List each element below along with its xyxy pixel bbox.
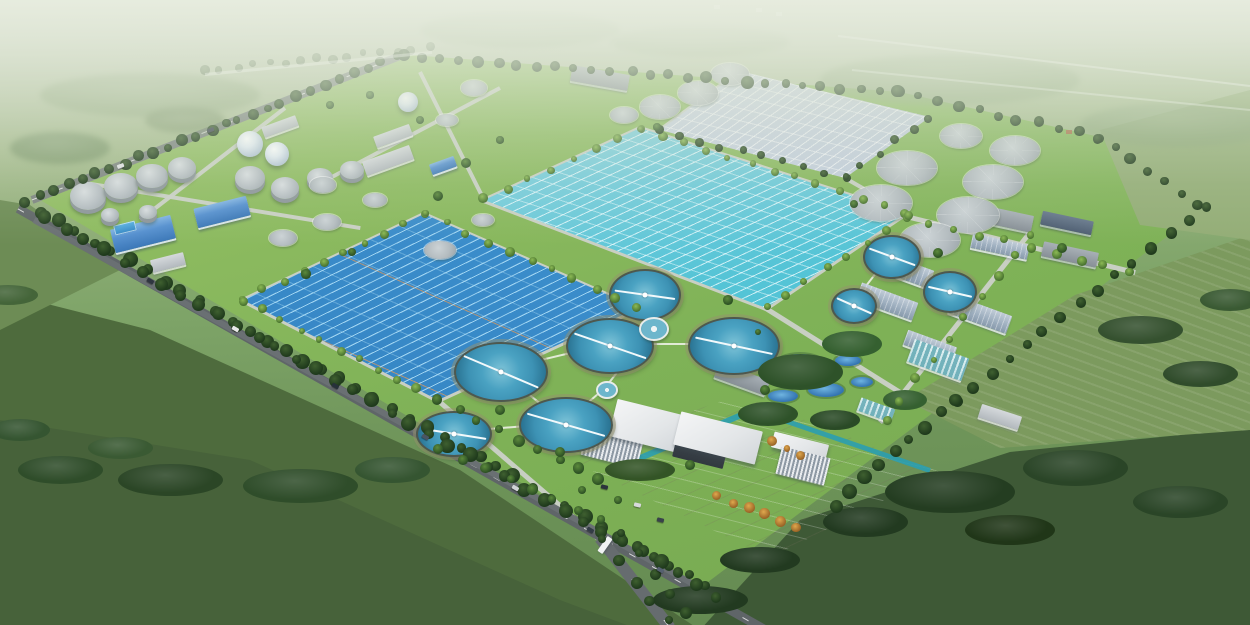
tree	[461, 230, 469, 238]
wastewater-treatment-plant-rendering	[0, 0, 1250, 625]
tree	[435, 54, 444, 63]
tree	[836, 187, 844, 195]
tree	[617, 535, 629, 547]
tree	[644, 596, 654, 606]
tree	[711, 592, 721, 602]
tree-clump	[822, 331, 882, 357]
tree	[950, 226, 957, 233]
thickener-tank	[596, 381, 618, 399]
tree	[192, 298, 205, 311]
tree	[1036, 326, 1047, 337]
tree	[1110, 270, 1119, 279]
tree	[685, 460, 695, 470]
tree	[665, 616, 673, 624]
tree	[233, 116, 241, 124]
tree	[549, 265, 556, 272]
tree	[877, 151, 884, 158]
tree	[1027, 231, 1034, 238]
tree	[478, 193, 488, 203]
tree	[578, 517, 588, 527]
storage-tank	[271, 177, 299, 199]
tree	[1166, 227, 1177, 238]
tree	[312, 53, 321, 62]
storage-tank	[101, 208, 119, 222]
tree	[811, 179, 819, 187]
covered-tank	[610, 107, 638, 123]
tree	[175, 290, 186, 301]
covered-tank	[640, 95, 680, 118]
tree	[48, 185, 59, 196]
tree	[505, 247, 515, 257]
tree	[527, 484, 538, 495]
tree	[890, 445, 902, 457]
tree	[571, 156, 578, 163]
tree-clump	[1023, 450, 1128, 486]
tree	[494, 58, 504, 68]
clarifier-center-hub	[452, 432, 457, 437]
tree	[1076, 297, 1087, 308]
clarifier-tank	[454, 342, 548, 402]
tree	[646, 70, 655, 79]
tree	[673, 567, 683, 577]
tree	[593, 285, 602, 294]
tree	[1077, 256, 1087, 266]
tree	[212, 307, 225, 320]
tree	[1127, 259, 1136, 268]
storage-tank	[139, 205, 157, 219]
tree	[1145, 242, 1157, 254]
tree	[1125, 268, 1133, 276]
tree-clump	[355, 457, 430, 483]
tree	[918, 421, 932, 435]
clarifier-center-hub	[852, 304, 857, 309]
tree	[326, 101, 333, 108]
tree	[461, 158, 471, 168]
covered-tank	[363, 193, 387, 207]
tree	[249, 60, 256, 67]
tree	[631, 577, 643, 589]
covered-tank	[310, 177, 336, 192]
covered-tank	[940, 124, 982, 148]
storage-tank	[70, 182, 106, 210]
clarifier-tank	[863, 235, 921, 279]
tree	[267, 59, 273, 65]
tree	[744, 502, 755, 513]
tree	[567, 273, 576, 282]
tree-clump	[18, 456, 103, 484]
tree	[592, 473, 604, 485]
tree-clump	[720, 547, 800, 573]
tree-clump	[810, 410, 860, 430]
tree	[301, 269, 310, 278]
tree	[598, 535, 606, 543]
tree	[38, 210, 51, 223]
tree-clump	[758, 354, 843, 390]
tree	[775, 516, 786, 527]
tree	[653, 123, 660, 130]
tree	[422, 210, 429, 217]
tree-clump	[1163, 361, 1238, 387]
tree	[495, 425, 503, 433]
tree	[949, 394, 961, 406]
tree	[635, 549, 643, 557]
tree	[700, 71, 712, 83]
tree	[380, 230, 389, 239]
tree	[872, 459, 885, 472]
tree	[472, 416, 480, 424]
tree-clump	[610, 27, 790, 57]
covered-tank	[963, 165, 1023, 200]
tree	[613, 555, 624, 566]
tree	[339, 249, 346, 256]
tree	[1112, 143, 1120, 151]
tree-clump	[40, 73, 260, 117]
tree	[120, 258, 130, 268]
tree	[433, 444, 443, 454]
tree	[306, 86, 316, 96]
tree	[147, 147, 158, 158]
tree	[1098, 260, 1107, 269]
tree	[721, 77, 729, 85]
tree	[36, 190, 46, 200]
tree	[1054, 312, 1066, 324]
tree	[953, 101, 965, 113]
tree	[484, 239, 493, 248]
tree	[925, 220, 932, 227]
tree	[280, 344, 293, 357]
storage-tank	[104, 173, 138, 200]
tree	[375, 367, 382, 374]
tree	[883, 416, 892, 425]
tree	[895, 397, 904, 406]
tree	[904, 211, 913, 220]
distant-farm-building	[1066, 130, 1072, 134]
tree	[654, 554, 669, 569]
tree	[881, 201, 889, 209]
tree	[859, 195, 868, 204]
clarifier-tank	[923, 271, 977, 313]
tree	[782, 79, 791, 88]
tree	[994, 271, 1003, 280]
storage-tank	[340, 161, 364, 180]
tree	[695, 138, 704, 147]
tree	[690, 578, 703, 591]
tree	[723, 295, 732, 304]
tree	[524, 175, 531, 182]
tree	[796, 451, 805, 460]
tree	[729, 499, 738, 508]
tree	[683, 73, 693, 83]
tree	[1027, 243, 1037, 253]
tree-clump	[88, 437, 153, 459]
distant-farm-building	[714, 5, 720, 9]
tree	[458, 455, 468, 465]
clarifier-tank	[831, 288, 877, 324]
tree	[507, 475, 515, 483]
covered-tank	[424, 241, 456, 260]
clarifier-tank	[609, 269, 681, 321]
clarifier-center-hub	[608, 344, 613, 349]
tree	[933, 248, 943, 258]
tree	[97, 241, 111, 255]
tree	[791, 523, 801, 533]
covered-tank	[461, 80, 487, 95]
tree	[987, 368, 999, 380]
storage-tank	[168, 157, 196, 179]
tree	[779, 157, 786, 164]
tree-clump	[965, 515, 1055, 545]
clarifier-center-hub	[499, 370, 504, 375]
tree	[360, 49, 367, 56]
tree	[715, 144, 723, 152]
tree	[254, 332, 265, 343]
tree	[376, 48, 384, 56]
covered-tank	[990, 136, 1040, 165]
tree	[1143, 167, 1152, 176]
tree	[614, 496, 621, 503]
tree	[741, 76, 753, 88]
clarifier-center-hub	[732, 344, 737, 349]
tree-clump	[1133, 486, 1228, 518]
tree-clump	[420, 12, 620, 48]
thickener-tank	[639, 317, 669, 341]
tree	[573, 462, 584, 473]
tree	[914, 92, 922, 100]
tree	[712, 491, 721, 500]
tree	[335, 74, 344, 83]
gas-holder-sphere	[237, 131, 263, 157]
tree	[759, 508, 770, 519]
tree	[830, 500, 843, 513]
tree	[393, 376, 401, 384]
clarifier-center-hub	[564, 423, 569, 428]
tree	[496, 136, 503, 143]
tree-clump	[1098, 316, 1183, 344]
tree	[504, 185, 513, 194]
tree	[191, 132, 201, 142]
tree	[1093, 134, 1103, 144]
tree	[610, 293, 620, 303]
tree	[815, 81, 825, 91]
tree	[1006, 355, 1014, 363]
covered-tank	[678, 81, 718, 104]
tree	[843, 173, 850, 180]
tree	[362, 240, 369, 247]
tree-clump	[118, 464, 223, 496]
tree	[133, 150, 143, 160]
tree	[337, 347, 346, 356]
tree	[574, 506, 583, 515]
tree	[637, 126, 643, 132]
tree-clump	[883, 390, 927, 410]
covered-tank	[269, 230, 297, 246]
tree	[78, 174, 88, 184]
garden-pond	[851, 377, 873, 387]
tree	[513, 435, 525, 447]
distant-farm-building	[776, 12, 782, 16]
tree	[366, 91, 373, 98]
clarifier-center-hub	[948, 290, 953, 295]
tree-clump	[885, 471, 1015, 513]
tree	[281, 278, 289, 286]
tree-clump	[243, 469, 358, 503]
tree	[685, 570, 694, 579]
tree-clump	[10, 132, 110, 164]
clarifier-center-hub	[643, 293, 648, 298]
clarifier-center-hub	[890, 255, 895, 260]
tree	[904, 435, 913, 444]
tree	[910, 125, 919, 134]
tree-clump	[605, 459, 675, 481]
tree	[994, 112, 1003, 121]
storage-tank	[235, 166, 265, 189]
tree	[784, 445, 791, 452]
covered-tank	[313, 214, 341, 230]
covered-tank	[877, 151, 937, 186]
tree	[258, 304, 267, 313]
tree	[1023, 340, 1032, 349]
tree	[764, 303, 771, 310]
tree	[511, 60, 521, 70]
tree	[1034, 116, 1044, 126]
tree	[842, 484, 857, 499]
tree	[356, 355, 363, 362]
tree	[401, 416, 416, 431]
tree	[559, 504, 573, 518]
tree	[857, 470, 871, 484]
distant-farm-building	[756, 8, 762, 12]
tree	[164, 144, 172, 152]
tree	[680, 607, 692, 619]
tree	[364, 392, 379, 407]
tree	[824, 263, 832, 271]
tree	[876, 87, 884, 95]
tree	[791, 172, 798, 179]
tree	[399, 220, 407, 228]
tree	[77, 233, 89, 245]
tree	[1011, 251, 1018, 258]
clarifier-tank	[519, 397, 613, 453]
tree	[597, 515, 605, 523]
tree	[1074, 126, 1084, 136]
tree	[426, 42, 435, 51]
garden-pond	[768, 390, 798, 402]
tree-clump	[738, 402, 798, 426]
gas-holder-sphere	[265, 142, 289, 166]
tree	[924, 115, 931, 122]
gas-holder-sphere	[398, 92, 418, 112]
tree	[176, 134, 188, 146]
tree	[767, 436, 777, 446]
tree	[750, 160, 756, 166]
tree	[248, 109, 259, 120]
